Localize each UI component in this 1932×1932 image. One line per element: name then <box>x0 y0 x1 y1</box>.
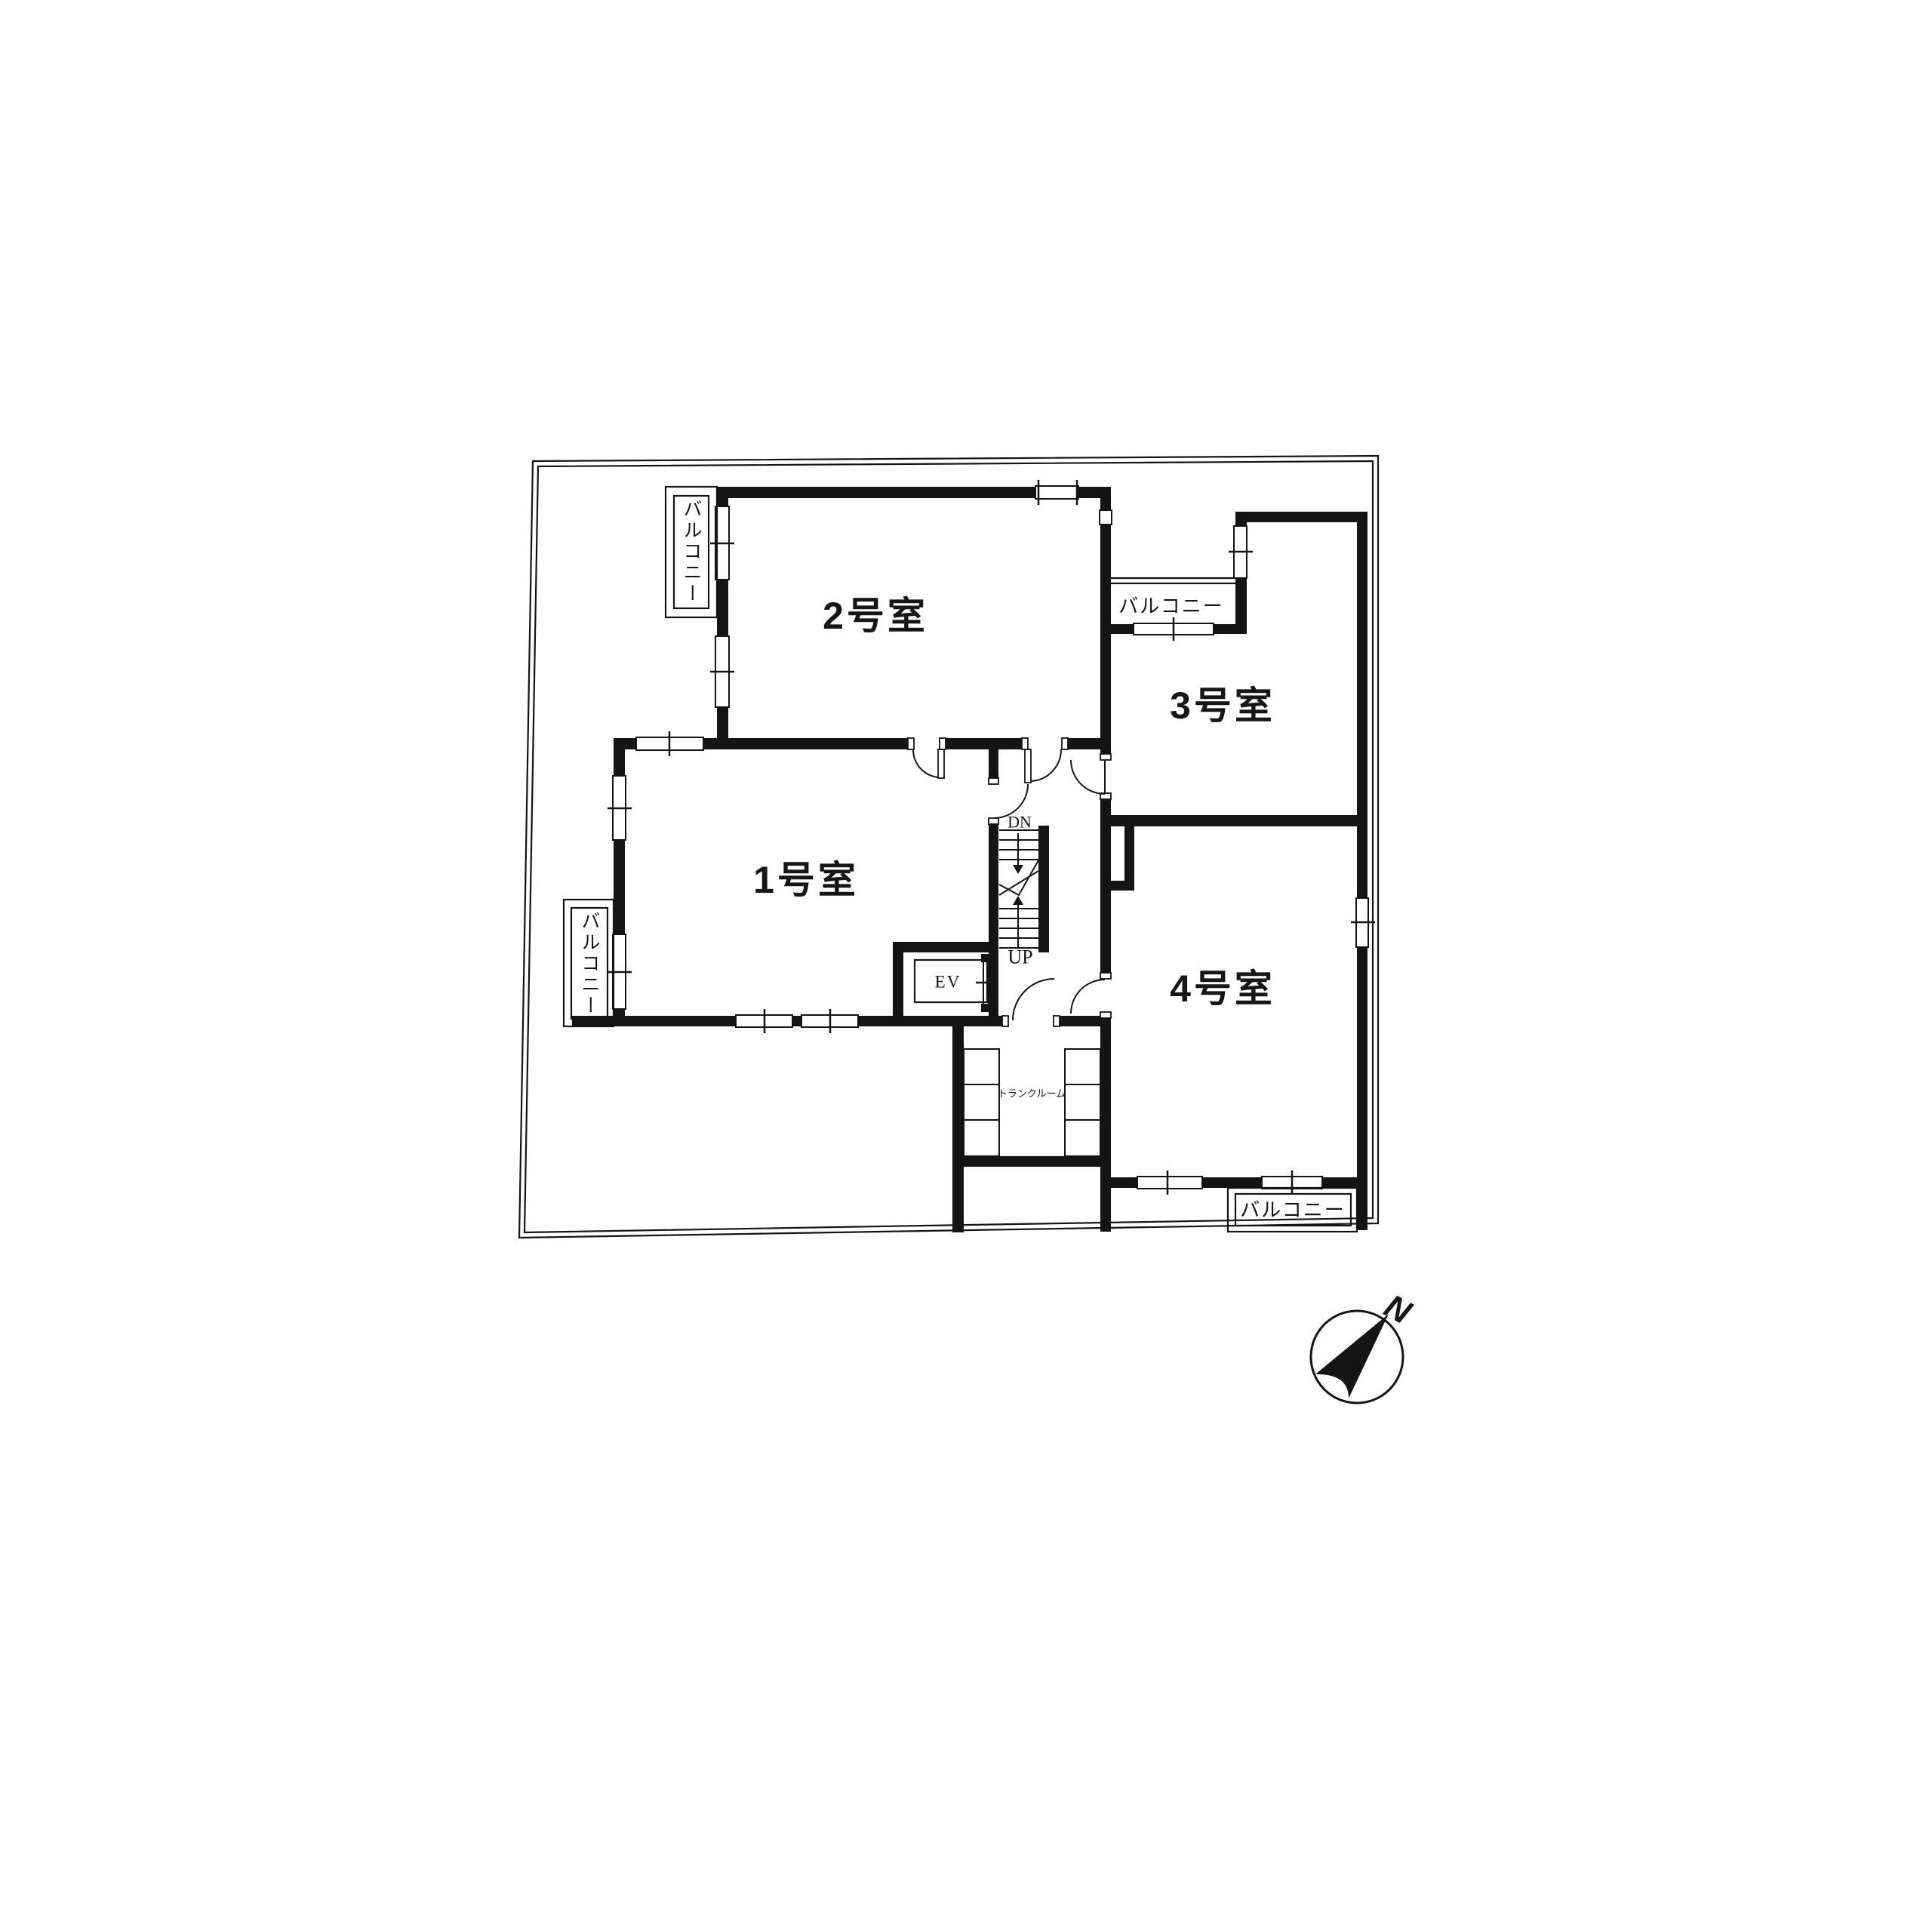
room-2-label: 2号室 <box>823 595 928 637</box>
balcony-label: バルコニー <box>681 499 702 605</box>
elevator-label: EV <box>935 973 961 992</box>
balcony-top-left: バルコニー <box>666 487 717 617</box>
floor-plan-canvas: DN UP EV トランクルーム バルコニー バルコニー バルコニー <box>0 0 1932 1932</box>
staircase: DN UP <box>999 813 1038 968</box>
north-compass-icon: N <box>1311 1287 1418 1403</box>
balcony-left: バルコニー <box>564 900 614 1026</box>
elevator: EV <box>915 954 996 1012</box>
trunk-room: トランクルーム <box>964 1049 1100 1156</box>
stairs-down-label: DN <box>1008 813 1032 832</box>
room-4-label: 4号室 <box>1170 968 1275 1010</box>
site-boundary <box>519 456 1378 1238</box>
compass-north-label: N <box>1378 1287 1417 1332</box>
balcony-middle: バルコニー <box>1111 578 1235 617</box>
balcony-label: バルコニー <box>1240 1198 1345 1221</box>
balcony-label: バルコニー <box>579 911 600 1017</box>
balcony-label: バルコニー <box>1118 595 1223 617</box>
stairs-up-label: UP <box>1008 946 1032 968</box>
room-1-label: 1号室 <box>753 859 859 901</box>
balcony-bottom-right: バルコニー <box>1228 1188 1357 1232</box>
room-3-label: 3号室 <box>1170 685 1275 727</box>
trunk-room-label: トランクルーム <box>998 1088 1066 1100</box>
